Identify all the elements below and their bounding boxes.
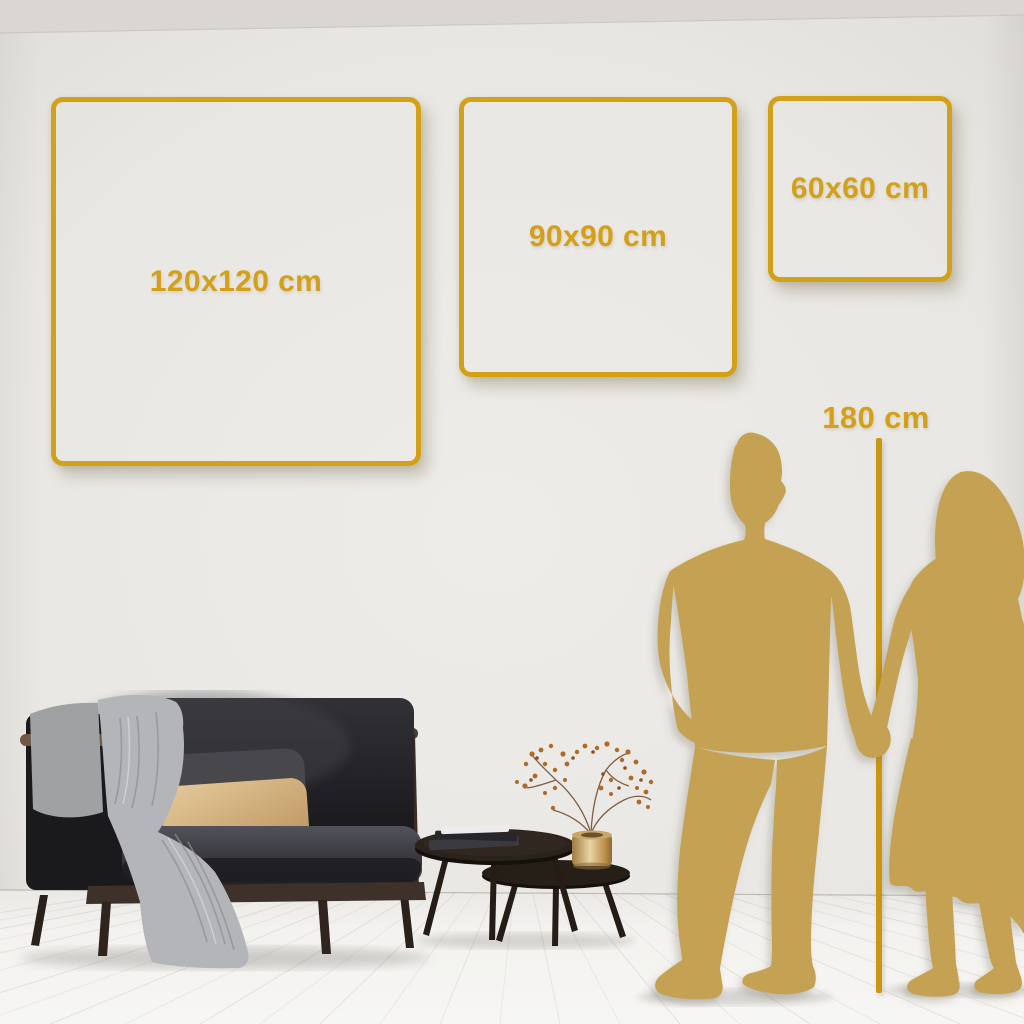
man-head-torso: [670, 433, 832, 753]
woman-silhouette: [868, 471, 1024, 997]
brass-vase: [572, 831, 612, 870]
sofa-front-right-leg: [318, 900, 331, 954]
couple-silhouette: [625, 428, 1024, 1008]
size-frame-90-label: 90x90 cm: [529, 220, 667, 254]
sofa-back-left-leg: [31, 895, 48, 946]
man-silhouette: [655, 433, 883, 1000]
size-guide-scene: 120x120 cm 90x90 cm 60x60 cm: [0, 0, 1024, 1024]
sofa-illustration: [10, 690, 450, 975]
man-left-leg: [655, 747, 775, 999]
holding-hands: [855, 720, 891, 758]
couple-figures: [655, 433, 1024, 1000]
size-frame-120-label: 120x120 cm: [150, 265, 323, 299]
tables-floor-shadow: [415, 933, 635, 949]
size-frame-60-label: 60x60 cm: [791, 172, 929, 206]
size-frame-120: 120x120 cm: [51, 97, 421, 466]
size-frame-60: 60x60 cm: [768, 96, 952, 282]
sofa-front-left-leg: [98, 902, 111, 956]
ceiling-line: [0, 0, 1024, 40]
ceiling-strip: [0, 0, 1024, 33]
blanket-back-drape: [30, 703, 103, 818]
size-frame-90: 90x90 cm: [459, 97, 737, 377]
woman-left-leg: [907, 876, 960, 997]
woman-left-arm: [868, 584, 917, 741]
